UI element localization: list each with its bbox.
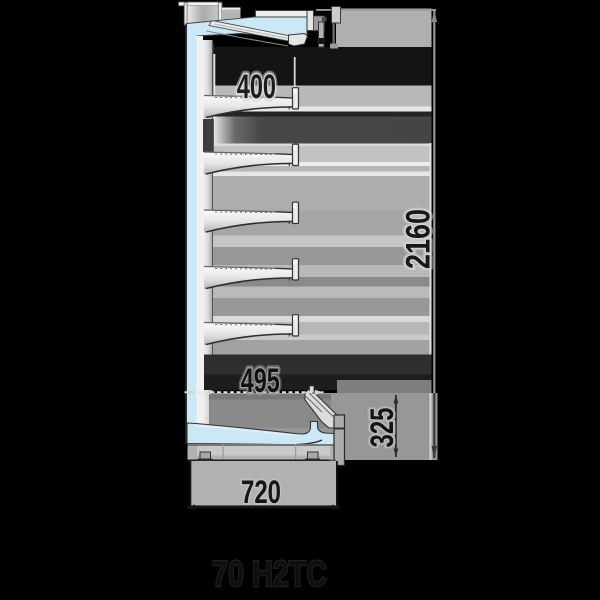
svg-text:720: 720 bbox=[241, 474, 281, 510]
svg-text:495: 495 bbox=[241, 362, 280, 400]
svg-text:400: 400 bbox=[237, 68, 276, 106]
svg-text:70 H2TC: 70 H2TC bbox=[212, 553, 327, 594]
svg-text:325: 325 bbox=[364, 408, 400, 448]
svg-text:2160: 2160 bbox=[400, 209, 438, 269]
